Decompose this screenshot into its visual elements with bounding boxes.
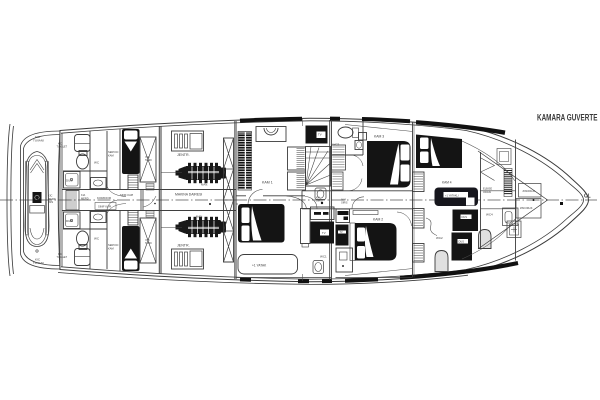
svg-text:KAM: KAM [108,153,114,157]
svg-text:GIRIS: GIRIS [341,201,348,204]
svg-text:WC2: WC2 [436,236,443,240]
svg-text:JENTR.: JENTR. [177,244,190,248]
svg-text:WC3: WC3 [333,143,340,147]
svg-text:KAM 4: KAM 4 [442,181,452,185]
svg-text:TUVALET: TUVALET [57,256,68,259]
svg-text:WC4: WC4 [486,213,493,217]
svg-text:KAM 2: KAM 2 [373,218,383,222]
svg-text:MAN.: MAN. [196,215,203,219]
svg-text:TUVANI: TUVANI [33,139,44,143]
svg-text:KAMARA GUVERTE: KAMARA GUVERTE [537,113,598,123]
svg-text:KORIDOR: KORIDOR [97,196,112,200]
svg-text:TUVALET: TUVALET [57,145,68,148]
svg-text:DUS: DUS [459,240,465,244]
svg-text:+1 YATAKLI: +1 YATAKLI [445,194,459,198]
svg-text:SINIF KAPI: SINIF KAPI [98,205,112,209]
svg-text:TV: TV [322,231,326,235]
svg-text:+1 YATAK: +1 YATAK [252,264,267,268]
svg-text:MAN.: MAN. [201,183,208,187]
svg-text:INIS: INIS [48,200,53,204]
svg-text:DUS: DUS [66,179,72,183]
svg-text:ZINCIRLIK: ZINCIRLIK [520,206,533,210]
svg-text:ZINCIRLIK: ZINCIRLIK [523,189,536,193]
svg-text:TANKI: TANKI [145,242,152,245]
svg-text:TANKI: TANKI [145,159,152,162]
svg-text:TUVANI: TUVANI [33,261,44,265]
svg-text:JENTR.: JENTR. [177,153,190,157]
svg-text:ODASI: ODASI [483,190,491,194]
svg-text:KAM: KAM [108,246,114,250]
svg-text:WC1: WC1 [320,255,327,259]
svg-text:MAKINA DAIRESI: MAKINA DAIRESI [175,193,202,197]
svg-text:WC: WC [94,161,100,165]
svg-text:KAM 1: KAM 1 [262,181,273,185]
svg-text:MERD: MERD [81,196,89,200]
svg-text:KAM 3: KAM 3 [374,135,384,139]
svg-text:SINIF KAPI: SINIF KAPI [120,193,134,197]
svg-text:TV: TV [340,231,343,234]
svg-text:TV: TV [318,133,322,137]
svg-text:DUS: DUS [66,219,72,223]
svg-text:DUS: DUS [462,215,468,219]
svg-text:WC: WC [94,237,100,241]
